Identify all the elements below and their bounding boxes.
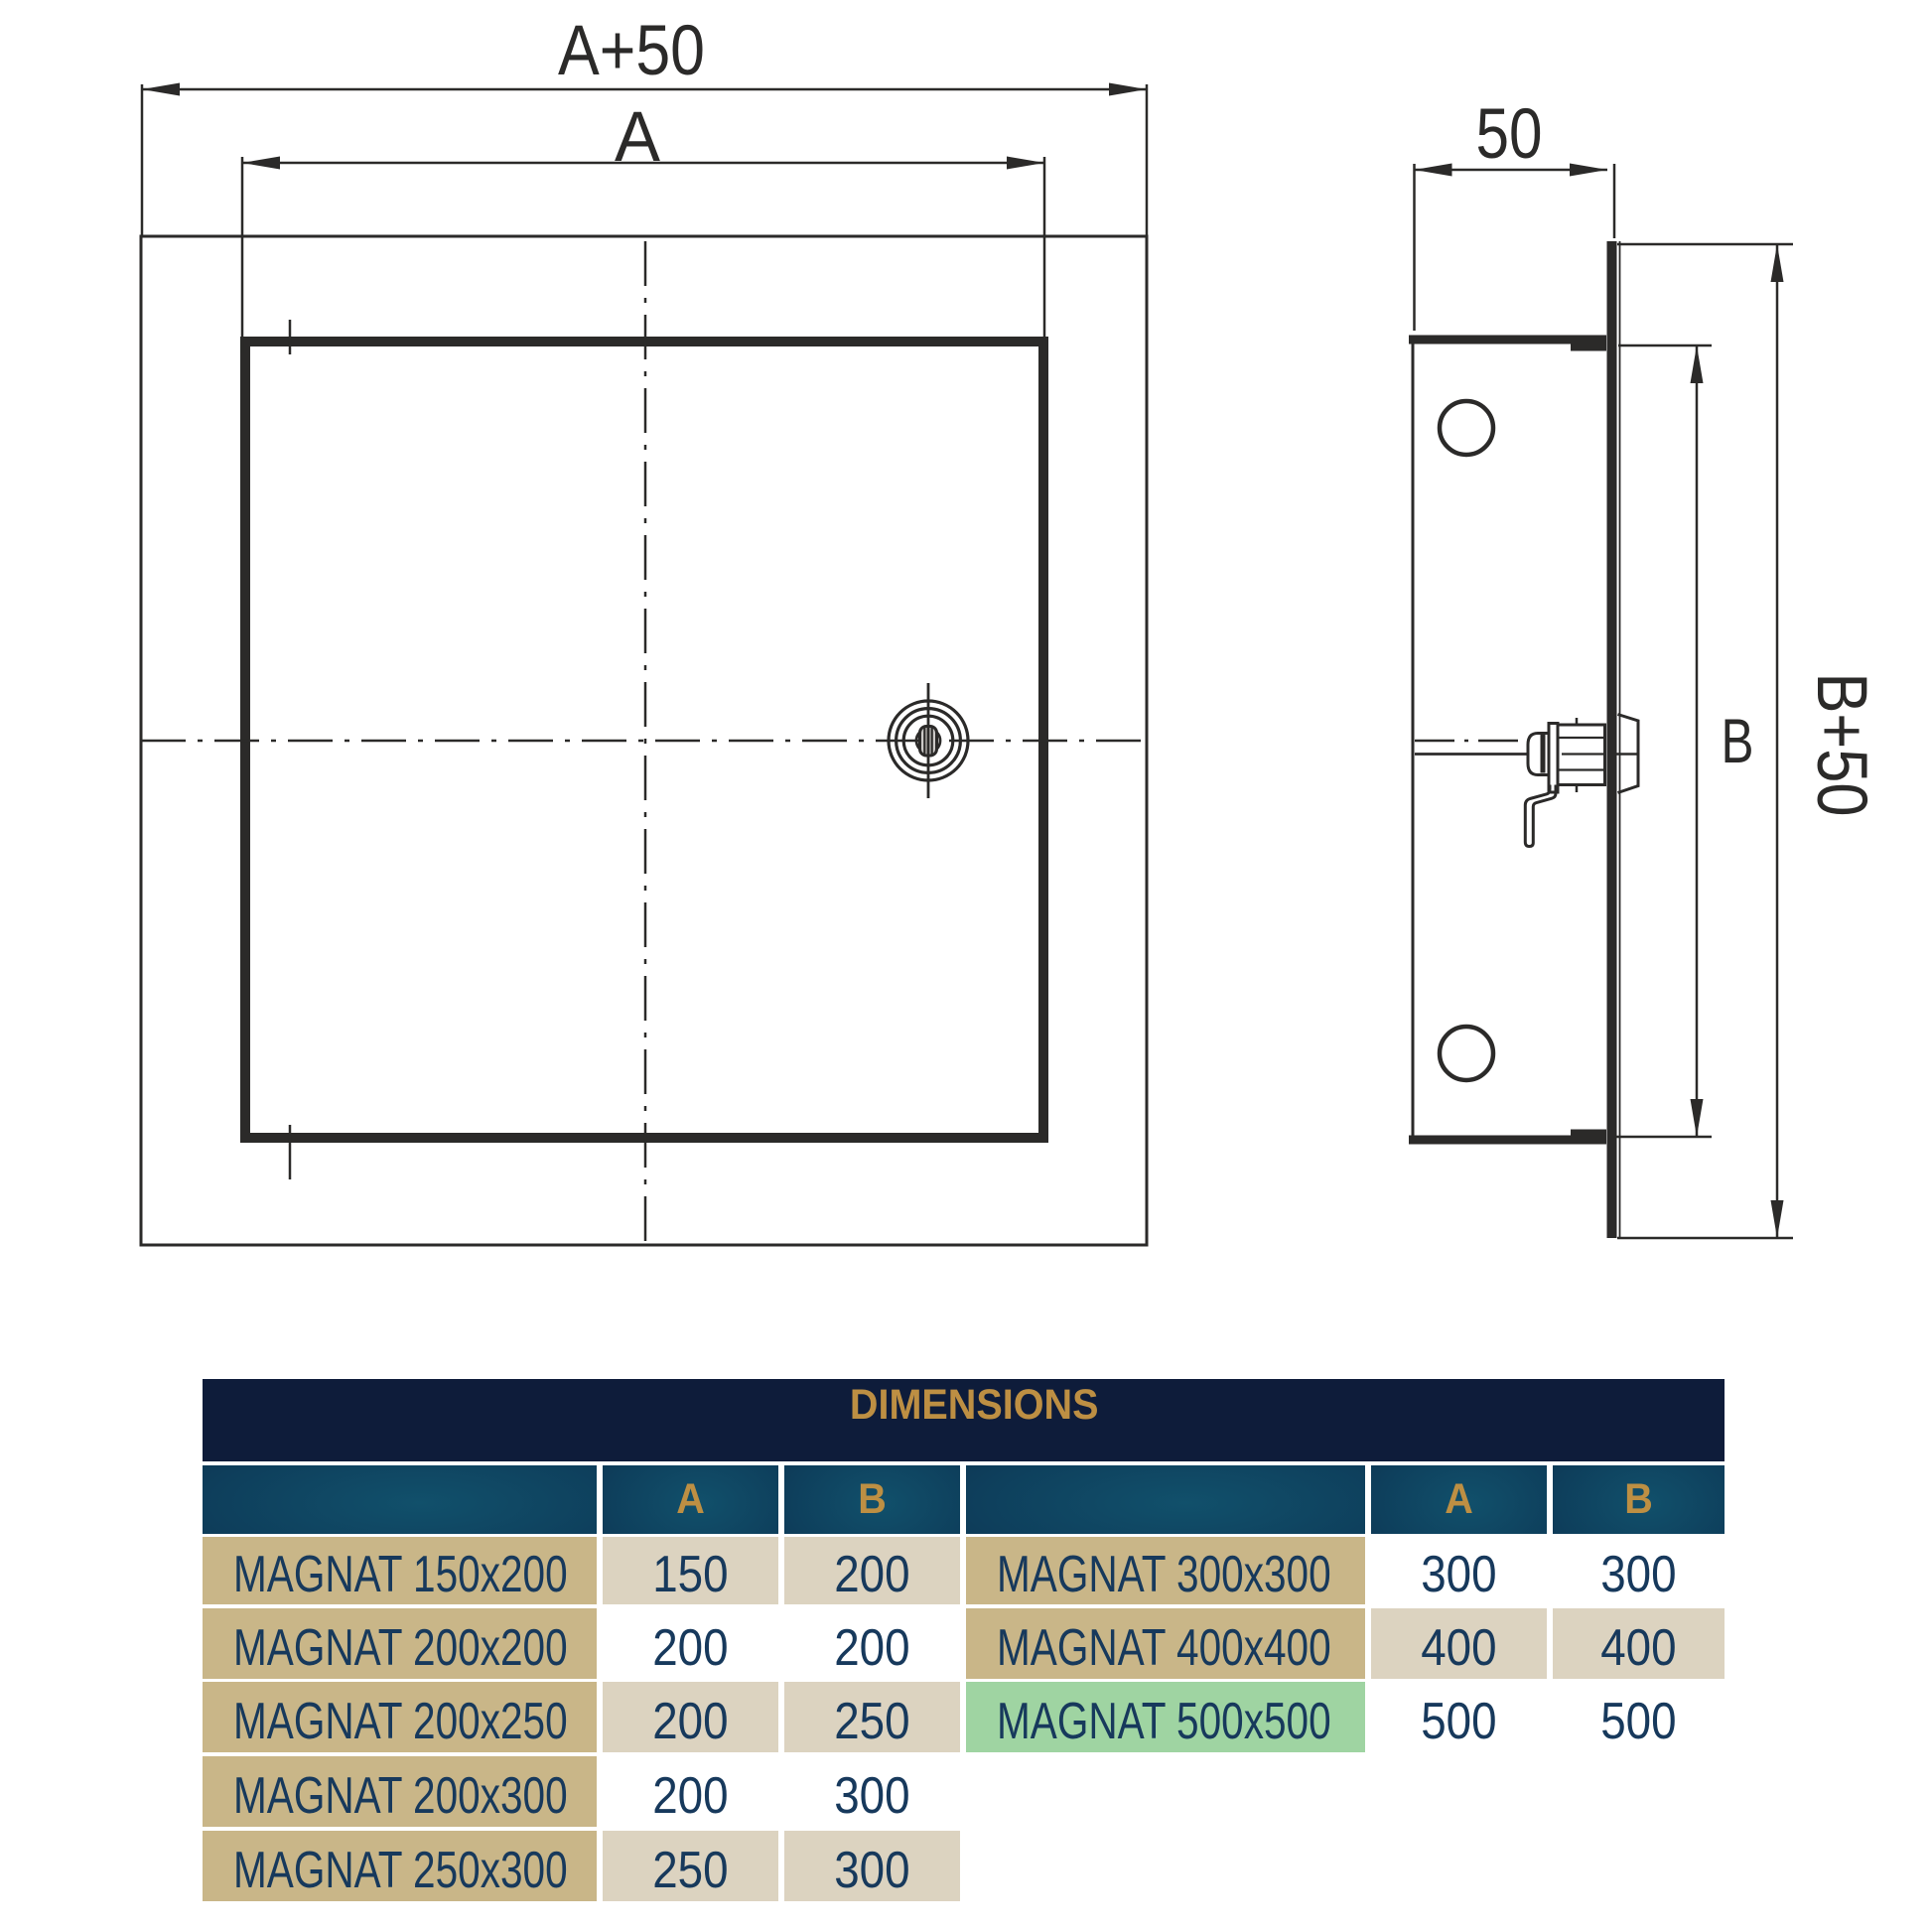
svg-text:A+50: A+50: [558, 12, 705, 90]
svg-text:A: A: [615, 98, 661, 177]
svg-text:50: 50: [1476, 95, 1543, 174]
svg-text:B: B: [1722, 707, 1754, 776]
svg-text:B+50: B+50: [1802, 673, 1880, 817]
